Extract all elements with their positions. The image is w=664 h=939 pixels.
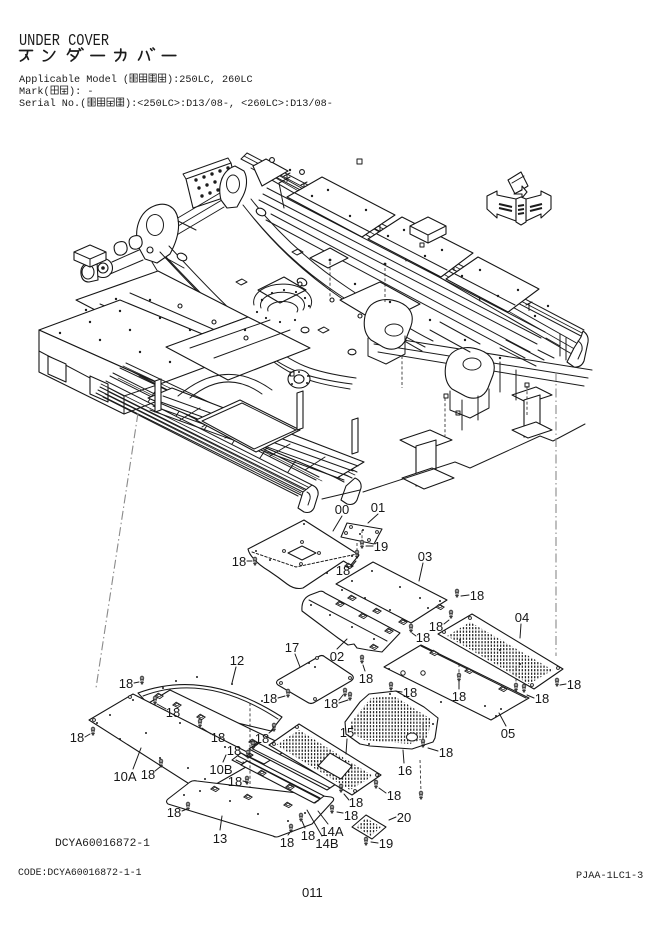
svg-text:10A: 10A	[113, 769, 136, 784]
svg-text:16: 16	[398, 763, 412, 778]
svg-text:18: 18	[263, 691, 277, 706]
svg-text:19: 19	[379, 836, 393, 851]
svg-text:18: 18	[535, 691, 549, 706]
svg-text:011: 011	[302, 885, 323, 900]
svg-text:18: 18	[280, 835, 294, 850]
svg-text:):<250LC>:D13/08-, <260LC>:D13: ):<250LC>:D13/08-, <260LC>:D13/08-	[125, 98, 333, 110]
svg-text:18: 18	[403, 685, 417, 700]
svg-text:UNDER COVER: UNDER COVER	[19, 31, 109, 50]
svg-text:18: 18	[232, 554, 246, 569]
svg-text:18: 18	[166, 705, 180, 720]
svg-text:18: 18	[470, 588, 484, 603]
svg-text:18: 18	[255, 731, 269, 746]
svg-text:14A: 14A	[320, 824, 343, 839]
svg-text:04: 04	[515, 610, 529, 625]
svg-text:15: 15	[340, 725, 354, 740]
svg-text:13: 13	[213, 831, 227, 846]
svg-text:18: 18	[429, 619, 443, 634]
svg-text:Mark(: Mark(	[19, 86, 50, 98]
svg-text:Applicable Model (: Applicable Model (	[19, 74, 129, 86]
svg-text:DCYA60016872-1: DCYA60016872-1	[55, 838, 150, 850]
svg-text:18: 18	[349, 795, 363, 810]
svg-text:18: 18	[119, 676, 133, 691]
svg-text:PJAA-1LC1-3: PJAA-1LC1-3	[576, 871, 643, 882]
svg-text:18: 18	[211, 730, 225, 745]
svg-text:18: 18	[301, 828, 315, 843]
svg-text:02: 02	[330, 649, 344, 664]
svg-text:18: 18	[324, 696, 338, 711]
svg-text:18: 18	[567, 677, 581, 692]
svg-text:18: 18	[141, 767, 155, 782]
svg-text:12: 12	[230, 653, 244, 668]
svg-text:18: 18	[228, 774, 242, 789]
svg-text:03: 03	[418, 549, 432, 564]
svg-text:18: 18	[70, 730, 84, 745]
svg-text:18: 18	[344, 808, 358, 823]
svg-text:01: 01	[371, 500, 385, 515]
svg-text:):250LC, 260LC: ):250LC, 260LC	[167, 74, 253, 86]
svg-text:18: 18	[227, 743, 241, 758]
svg-text:18: 18	[452, 689, 466, 704]
svg-text:18: 18	[336, 563, 350, 578]
svg-text:18: 18	[387, 788, 401, 803]
svg-text:18: 18	[167, 805, 181, 820]
svg-text:Serial No.(: Serial No.(	[19, 98, 86, 110]
svg-text:CODE:DCYA60016872-1-1: CODE:DCYA60016872-1-1	[18, 867, 142, 878]
svg-text:18: 18	[439, 745, 453, 760]
svg-text:19: 19	[374, 539, 388, 554]
svg-text:18: 18	[359, 671, 373, 686]
svg-text:17: 17	[285, 640, 299, 655]
svg-text:20: 20	[397, 810, 411, 825]
svg-text:05: 05	[501, 726, 515, 741]
svg-text:18: 18	[416, 630, 430, 645]
svg-text:): -: ): -	[69, 86, 93, 98]
svg-text:00: 00	[335, 502, 349, 517]
